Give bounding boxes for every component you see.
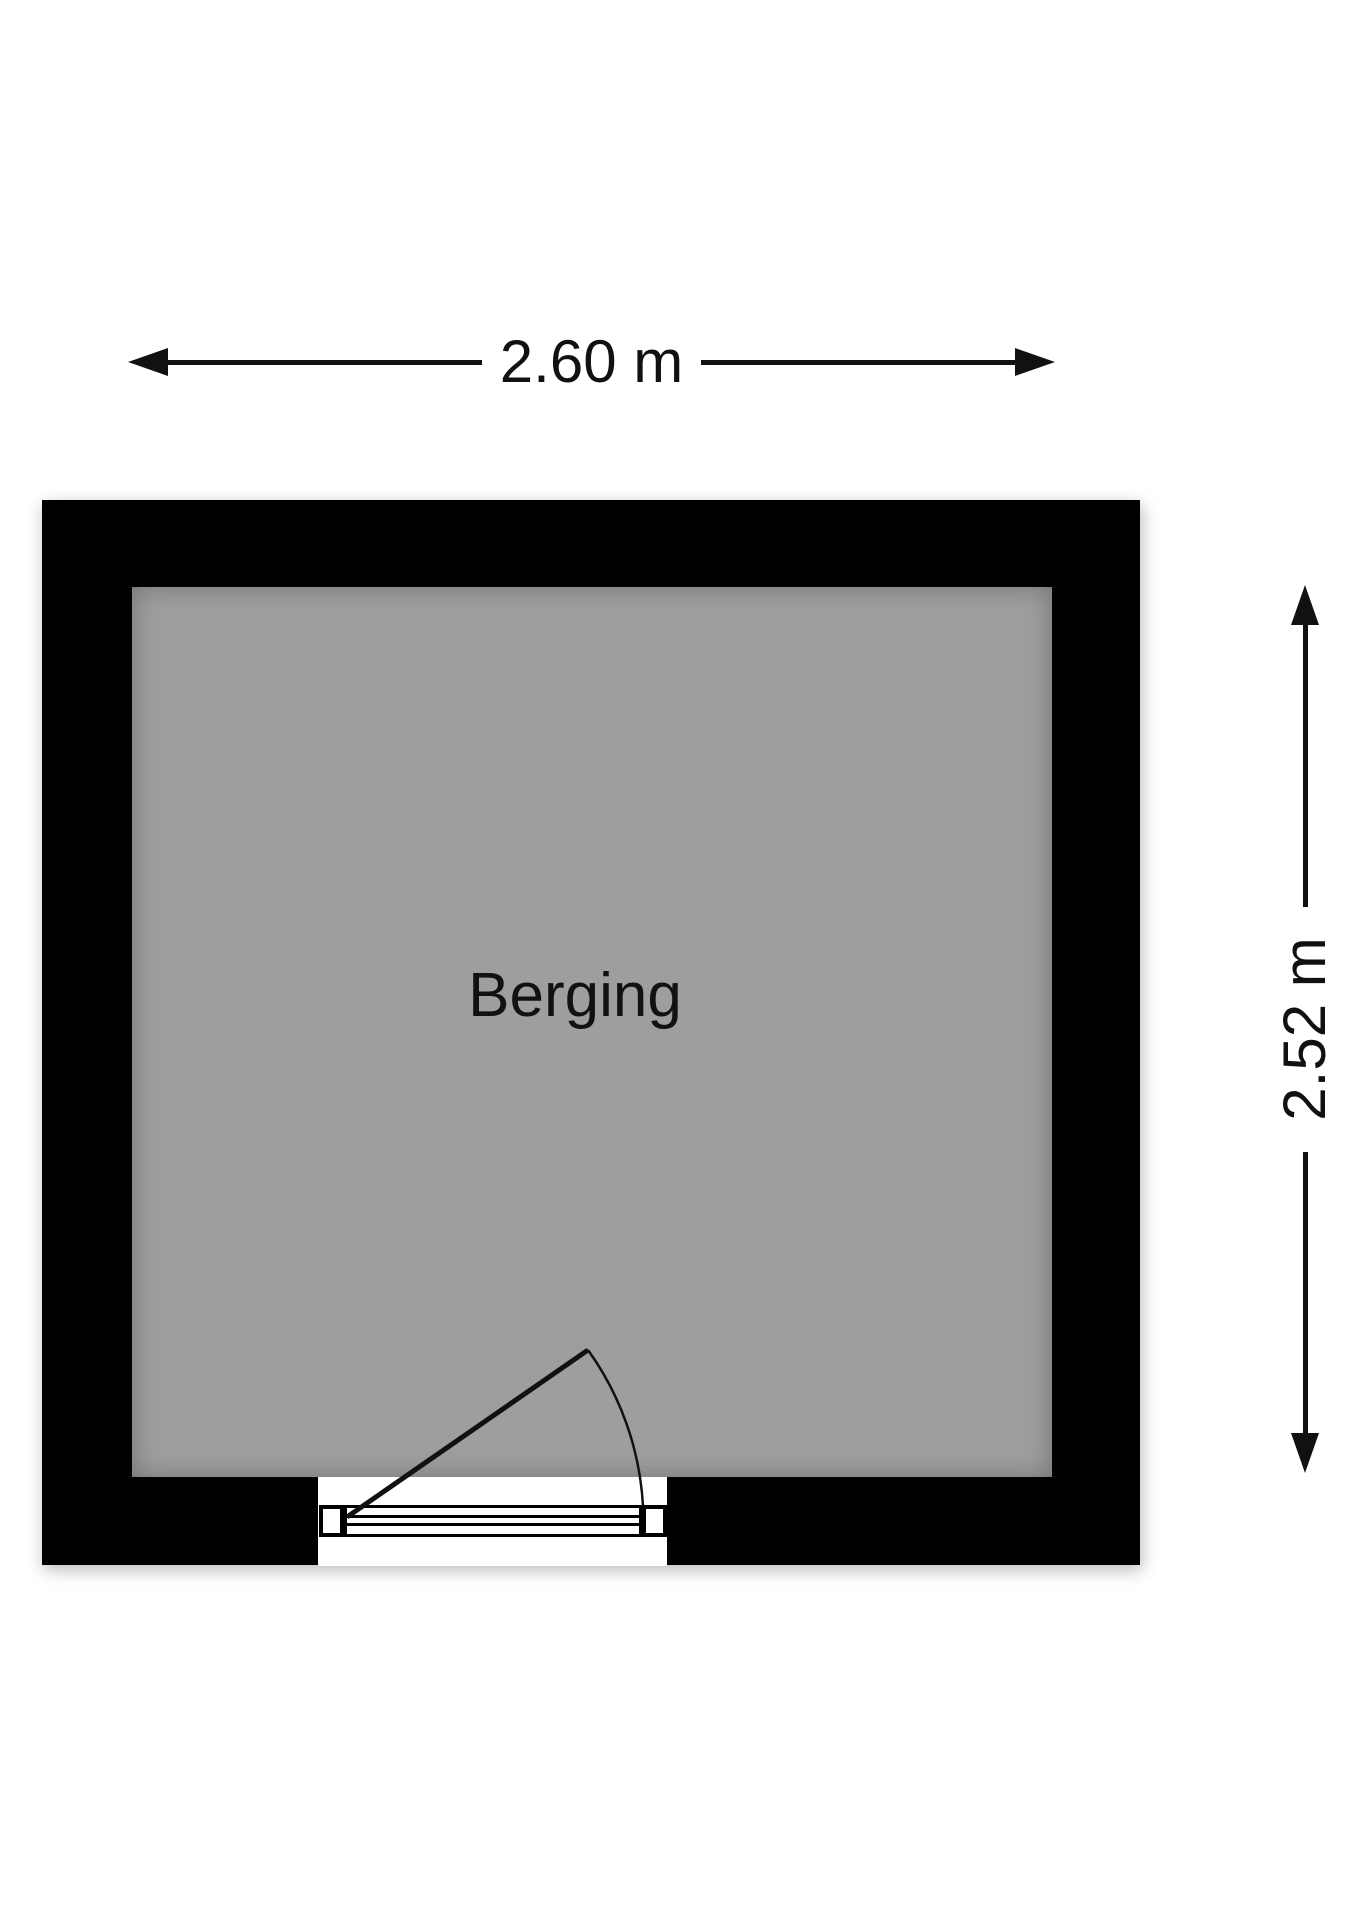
room-floor: Berging [132,587,1052,1477]
dimension-width: 2.60 m [128,334,1055,390]
dimension-height-label-wrap: 2.52 m [1279,907,1331,1152]
dimension-width-line-right [701,360,1015,365]
dimension-width-label: 2.60 m [482,332,701,392]
dimension-height-line-top [1303,625,1308,907]
dimension-width-line-left [168,360,482,365]
dimension-arrow-down-icon [1291,1433,1319,1473]
dimension-arrow-right-icon [1015,348,1055,376]
dimension-arrow-left-icon [128,348,168,376]
room-label: Berging [132,965,1018,1027]
dimension-height-line-bottom [1303,1152,1308,1434]
floorplan-canvas: 2.60 m Berging 2.52 m [0,0,1358,1920]
room-walls: Berging [42,500,1140,1565]
dimension-height-label: 2.52 m [1275,937,1335,1120]
door-jamb-right [642,1505,667,1537]
door-jamb-left [319,1505,344,1537]
dimension-arrow-up-icon [1291,585,1319,625]
dimension-height: 2.52 m [1279,585,1331,1473]
door-leaf-threshold [344,1505,642,1537]
